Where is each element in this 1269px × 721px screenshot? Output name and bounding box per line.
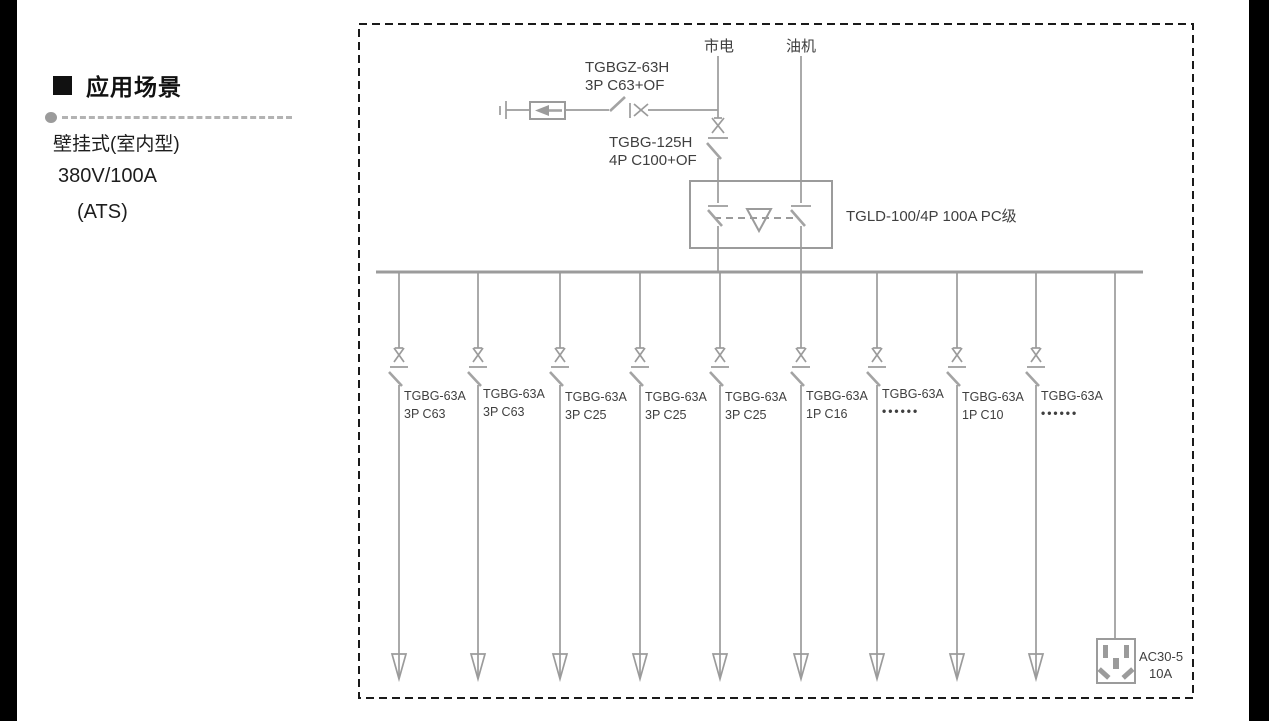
feeder-7-label-line2: •••••• (882, 404, 919, 418)
socket-feeder (1097, 272, 1135, 683)
feeder-5-label-line2: 3P C25 (725, 408, 767, 422)
feeder-3-label-line2: 3P C25 (565, 408, 607, 422)
feeder-2-label-line1: TGBG-63A (483, 387, 545, 401)
socket-label-line2: 10A (1149, 666, 1172, 681)
mains-incoming-line (707, 56, 728, 181)
socket-label-line1: AC30-5 (1139, 649, 1183, 664)
feeder-9-label-line1: TGBG-63A (1041, 389, 1103, 403)
feeder-1 (389, 272, 408, 679)
feeder-2 (468, 272, 487, 679)
incomer-breaker-label-line2: 4P C100+OF (609, 152, 697, 169)
spd-label-line2: 3P C63+OF (585, 77, 664, 94)
feeder-8 (947, 272, 966, 679)
feeder-6-label-line1: TGBG-63A (806, 389, 868, 403)
ats-mechanism-icon (747, 209, 771, 231)
feeder-9-label-line2: •••••• (1041, 406, 1078, 420)
feeder-2-label-line2: 3P C63 (483, 405, 525, 419)
ats-label: TGLD-100/4P 100A PC级 (846, 208, 1017, 225)
feeder-1-label-line2: 3P C63 (404, 407, 446, 421)
feeder-6-label-line2: 1P C16 (806, 407, 848, 421)
mains-source-label: 市电 (704, 38, 734, 55)
generator-source-label: 油机 (786, 38, 816, 55)
feeder-5 (710, 272, 729, 679)
feeder-9 (1026, 272, 1045, 679)
feeder-4-label-line2: 3P C25 (645, 408, 687, 422)
feeder-6 (791, 272, 810, 679)
feeder-4-label-line1: TGBG-63A (645, 390, 707, 404)
ats-switch (690, 181, 832, 272)
spd-arrow-icon (535, 105, 549, 116)
feeder-1-label-line1: TGBG-63A (404, 389, 466, 403)
single-line-diagram: 市电 油机 TGBGZ-63H (0, 0, 1269, 721)
incomer-breaker-label-line1: TGBG-125H (609, 134, 692, 151)
feeder-3 (550, 272, 569, 679)
feeder-8-label-line1: TGBG-63A (962, 390, 1024, 404)
feeder-5-label-line1: TGBG-63A (725, 390, 787, 404)
feeder-7-label-line1: TGBG-63A (882, 387, 944, 401)
feeder-8-label-line2: 1P C10 (962, 408, 1004, 422)
feeder-7 (867, 272, 886, 679)
spd-branch (500, 97, 718, 119)
page: 应用场景 壁挂式(室内型) 380V/100A (ATS) 市电 油机 (0, 0, 1269, 721)
feeder-4 (630, 272, 649, 679)
feeder-3-label-line1: TGBG-63A (565, 390, 627, 404)
spd-label-line1: TGBGZ-63H (585, 59, 669, 76)
diagram-frame (359, 24, 1193, 698)
